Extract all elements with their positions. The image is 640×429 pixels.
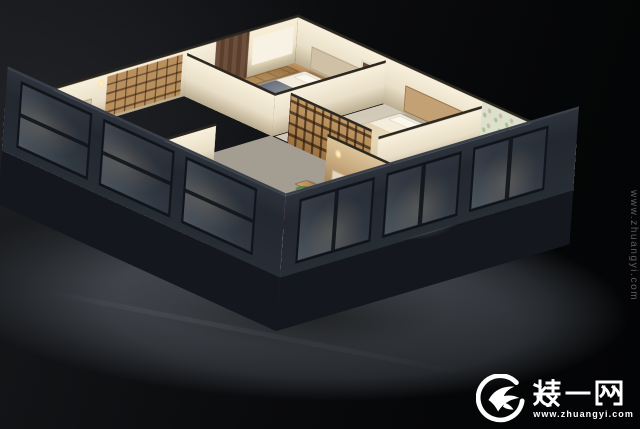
logo-text-block: 装一网 www.zhuangyi.com <box>533 379 634 419</box>
scene-background: www.zhuangyi.com 装一网 www.zhuangyi.com <box>0 0 640 429</box>
bookcase <box>105 54 183 117</box>
window-pane <box>382 151 462 238</box>
lit-display-panel <box>252 26 294 66</box>
window-pane <box>469 125 549 212</box>
logo-title-glyphs <box>533 379 625 407</box>
logo-url-text: www.zhuangyi.com <box>533 409 634 419</box>
swallow-swirl-icon <box>476 374 526 424</box>
bedside-lamp <box>335 148 343 160</box>
side-watermark: www.zhuangyi.com <box>628 190 639 301</box>
zhuangyi-logo: 装一网 www.zhuangyi.com <box>476 374 634 424</box>
wall-lamp <box>97 78 105 89</box>
logo-title-text: 装一网 <box>533 379 534 380</box>
showroom-floor-plan <box>2 63 573 277</box>
window-pane <box>295 177 375 264</box>
